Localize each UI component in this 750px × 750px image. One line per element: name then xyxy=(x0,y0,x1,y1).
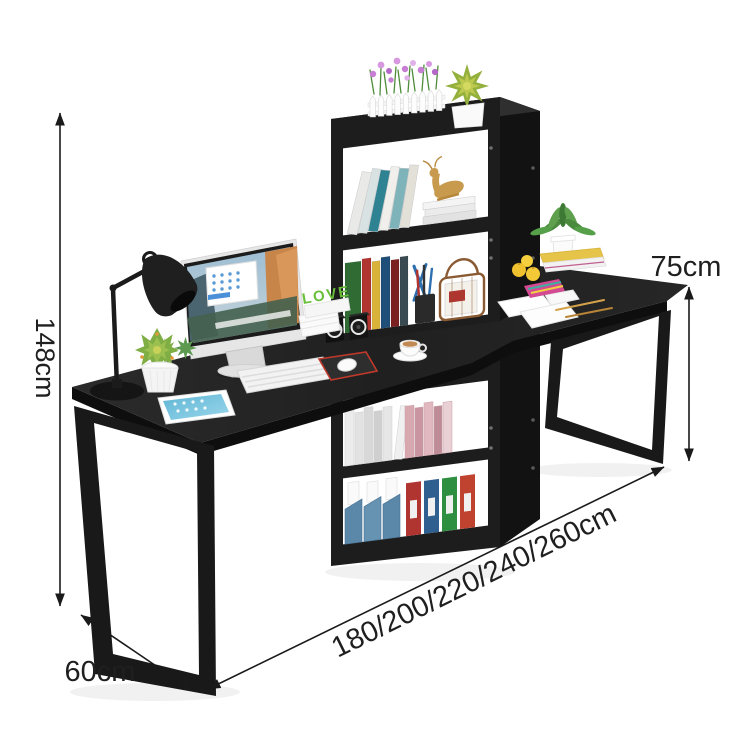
ribbed-pot xyxy=(142,368,178,392)
picket-fence-planter xyxy=(368,58,445,117)
potted-plant-on-books xyxy=(529,203,606,272)
white-square-pot xyxy=(452,103,484,128)
desk-product-illustration: LOVE 148cm 75cm 60cm 180/200/220/240/260… xyxy=(0,0,750,750)
height-dimension-label: 148cm xyxy=(30,317,60,398)
product-image: LOVE 148cm 75cm 60cm 180/200/220/240/260… xyxy=(0,0,750,750)
pink-books xyxy=(405,399,452,458)
depth-dimension-label: 60cm xyxy=(65,656,136,688)
left-leg-frame xyxy=(74,406,216,696)
desktop-height-dimension-label: 75cm xyxy=(651,251,722,283)
